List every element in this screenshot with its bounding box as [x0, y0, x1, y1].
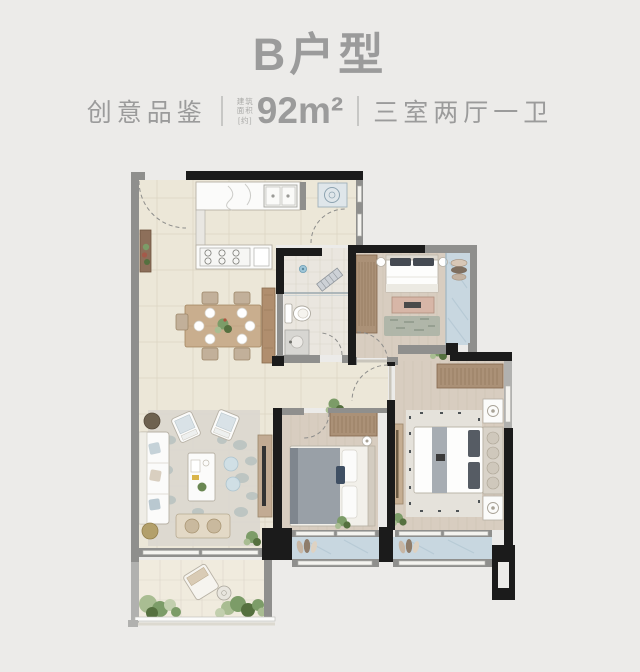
garden-table [217, 586, 231, 600]
master-slider-wall [395, 530, 492, 537]
bedroom-middle-bed [290, 446, 375, 526]
balcony-shelf [451, 259, 467, 280]
tv [262, 446, 266, 506]
left-outer-wall [131, 172, 139, 562]
tv-cabinet [258, 435, 272, 517]
pouf-dark [144, 413, 160, 429]
right-outer-wall-bottom [504, 428, 513, 545]
bedroom-top-bed [386, 255, 438, 292]
kitchen-divider-wall [300, 182, 306, 210]
bathroom-bedroom-divider [348, 245, 356, 365]
nook-right-wall [356, 172, 363, 248]
living-bedroom-wall [273, 408, 282, 548]
garden-window-wall [135, 617, 275, 626]
right-outer-wall-top [470, 245, 477, 347]
entry-console [140, 230, 151, 272]
pouf-gold [142, 523, 158, 539]
glass-stool [226, 477, 240, 491]
floorplan-page: B户型 创意品鉴 建筑 面积 [约] 92m² 三室两厅一卫 [0, 0, 640, 672]
living-corner-column [262, 528, 292, 560]
corner-column [492, 545, 515, 600]
top-structural-wall [186, 171, 363, 180]
master-top-wall [450, 352, 512, 361]
washbasin [285, 330, 309, 355]
bathroom-left-wall [277, 294, 283, 355]
glass-stool [224, 457, 238, 471]
coffee-table [188, 453, 215, 501]
tall-cabinet [196, 210, 205, 246]
master-left-wall [387, 362, 395, 366]
balcony-column [379, 527, 393, 562]
sofa [139, 432, 169, 524]
living-slider-wall [139, 548, 262, 557]
bedroom-top-bottom-wall [398, 345, 450, 354]
nightstand [377, 258, 386, 267]
dining-sideboard [262, 288, 275, 363]
floor-plan [0, 0, 640, 672]
garden-right-wall [264, 560, 272, 620]
bench [176, 514, 230, 538]
bedroom-middle-slider-wall [292, 530, 379, 537]
door-leaf [357, 360, 387, 363]
master-bed [414, 427, 483, 493]
bedroom-middle-top-wall [282, 408, 304, 415]
master-headboard [483, 427, 503, 494]
door-leaf [389, 366, 392, 400]
master-nightstand [483, 399, 503, 423]
cooktop [200, 248, 250, 266]
washing-machine [318, 183, 347, 207]
living-room [139, 409, 272, 546]
master-nightstand [483, 496, 503, 520]
toilet [285, 304, 311, 323]
